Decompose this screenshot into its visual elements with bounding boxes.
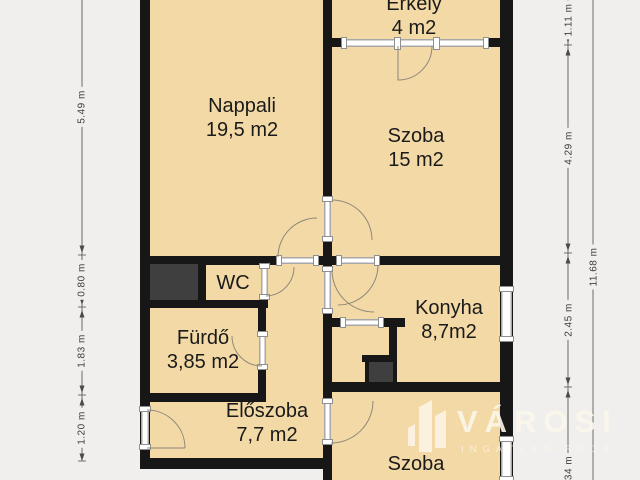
wall-below-wc [146,300,268,308]
door-nappali-szoba [324,198,331,240]
door-corridor-vestibule [324,268,331,312]
room-area: 7,7 m2 [226,423,308,447]
dim-label-right-4: 34 m [564,453,575,480]
room-name: Előszoba [226,399,308,423]
room-area: 4 m2 [386,16,442,40]
room-name: Nappali [206,94,278,118]
dim-label-right-1: 1.11 m [564,1,575,40]
wall-divider-top [323,0,332,198]
room-label-konyha: Konyha 8,7m2 [415,296,483,344]
door-entrance [141,408,149,448]
room-name: Erkély [386,0,442,16]
wall-mid-seg2 [317,256,338,265]
room-area: 3,85 m2 [167,350,239,374]
door-szoba1 [338,257,378,264]
window-szoba-bottom [501,438,512,480]
dim-label-left-2: 0.80 m [77,260,88,300]
room-label-furdo: Fürdő 3,85 m2 [167,326,239,374]
room-name: Szoba [388,452,445,476]
door-nappali [278,257,317,264]
room-label-erkely: Erkély 4 m2 [386,0,442,40]
room-label-wc: WC [216,271,249,295]
dim-label-right-outer: 11.68 m [589,245,600,290]
dim-label-left-1: 5.49 m [77,87,88,127]
shaft-pantry [369,362,393,384]
door-furdo [259,333,266,368]
room-name: Szoba [388,124,445,148]
dim-label-right-2: 4.29 m [564,128,575,168]
dim-label-left-4: 1.20 m [77,408,88,448]
shaft-wc [150,264,198,302]
room-area: 19,5 m2 [206,118,278,142]
wall-right [500,0,513,480]
wall-szoba-bottom-top [323,382,513,392]
room-label-eloszoba: Előszoba 7,7 m2 [226,399,308,447]
wall-vest-bottom-b [382,318,405,327]
dim-label-right-3: 2.45 m [564,300,575,340]
room-name: Konyha [415,296,483,320]
door-wc [261,265,268,298]
wall-divider-low [323,443,332,480]
wall-balcony-right-seg [487,38,501,47]
room-label-szoba2: Szoba [388,452,445,476]
wall-mid-seg3 [378,256,502,265]
room-area: 15 m2 [388,148,445,172]
room-label-szoba1: Szoba 15 m2 [388,124,445,172]
door-szoba-bottom [324,400,331,443]
window-konyha [501,288,512,340]
room-label-nappali: Nappali 19,5 m2 [206,94,278,142]
door-pantry [342,319,382,326]
room-area: 8,7m2 [415,320,483,344]
room-name: WC [216,271,249,295]
wall-furdo-right-a [258,300,266,333]
floor-plan-canvas: Erkély 4 m2 Nappali 19,5 m2 Szoba 15 m2 … [0,0,640,480]
window-balcony [343,39,487,47]
dim-label-left-3: 1.83 m [77,331,88,371]
room-name: Fürdő [167,326,239,350]
wall-bottom [140,458,330,469]
